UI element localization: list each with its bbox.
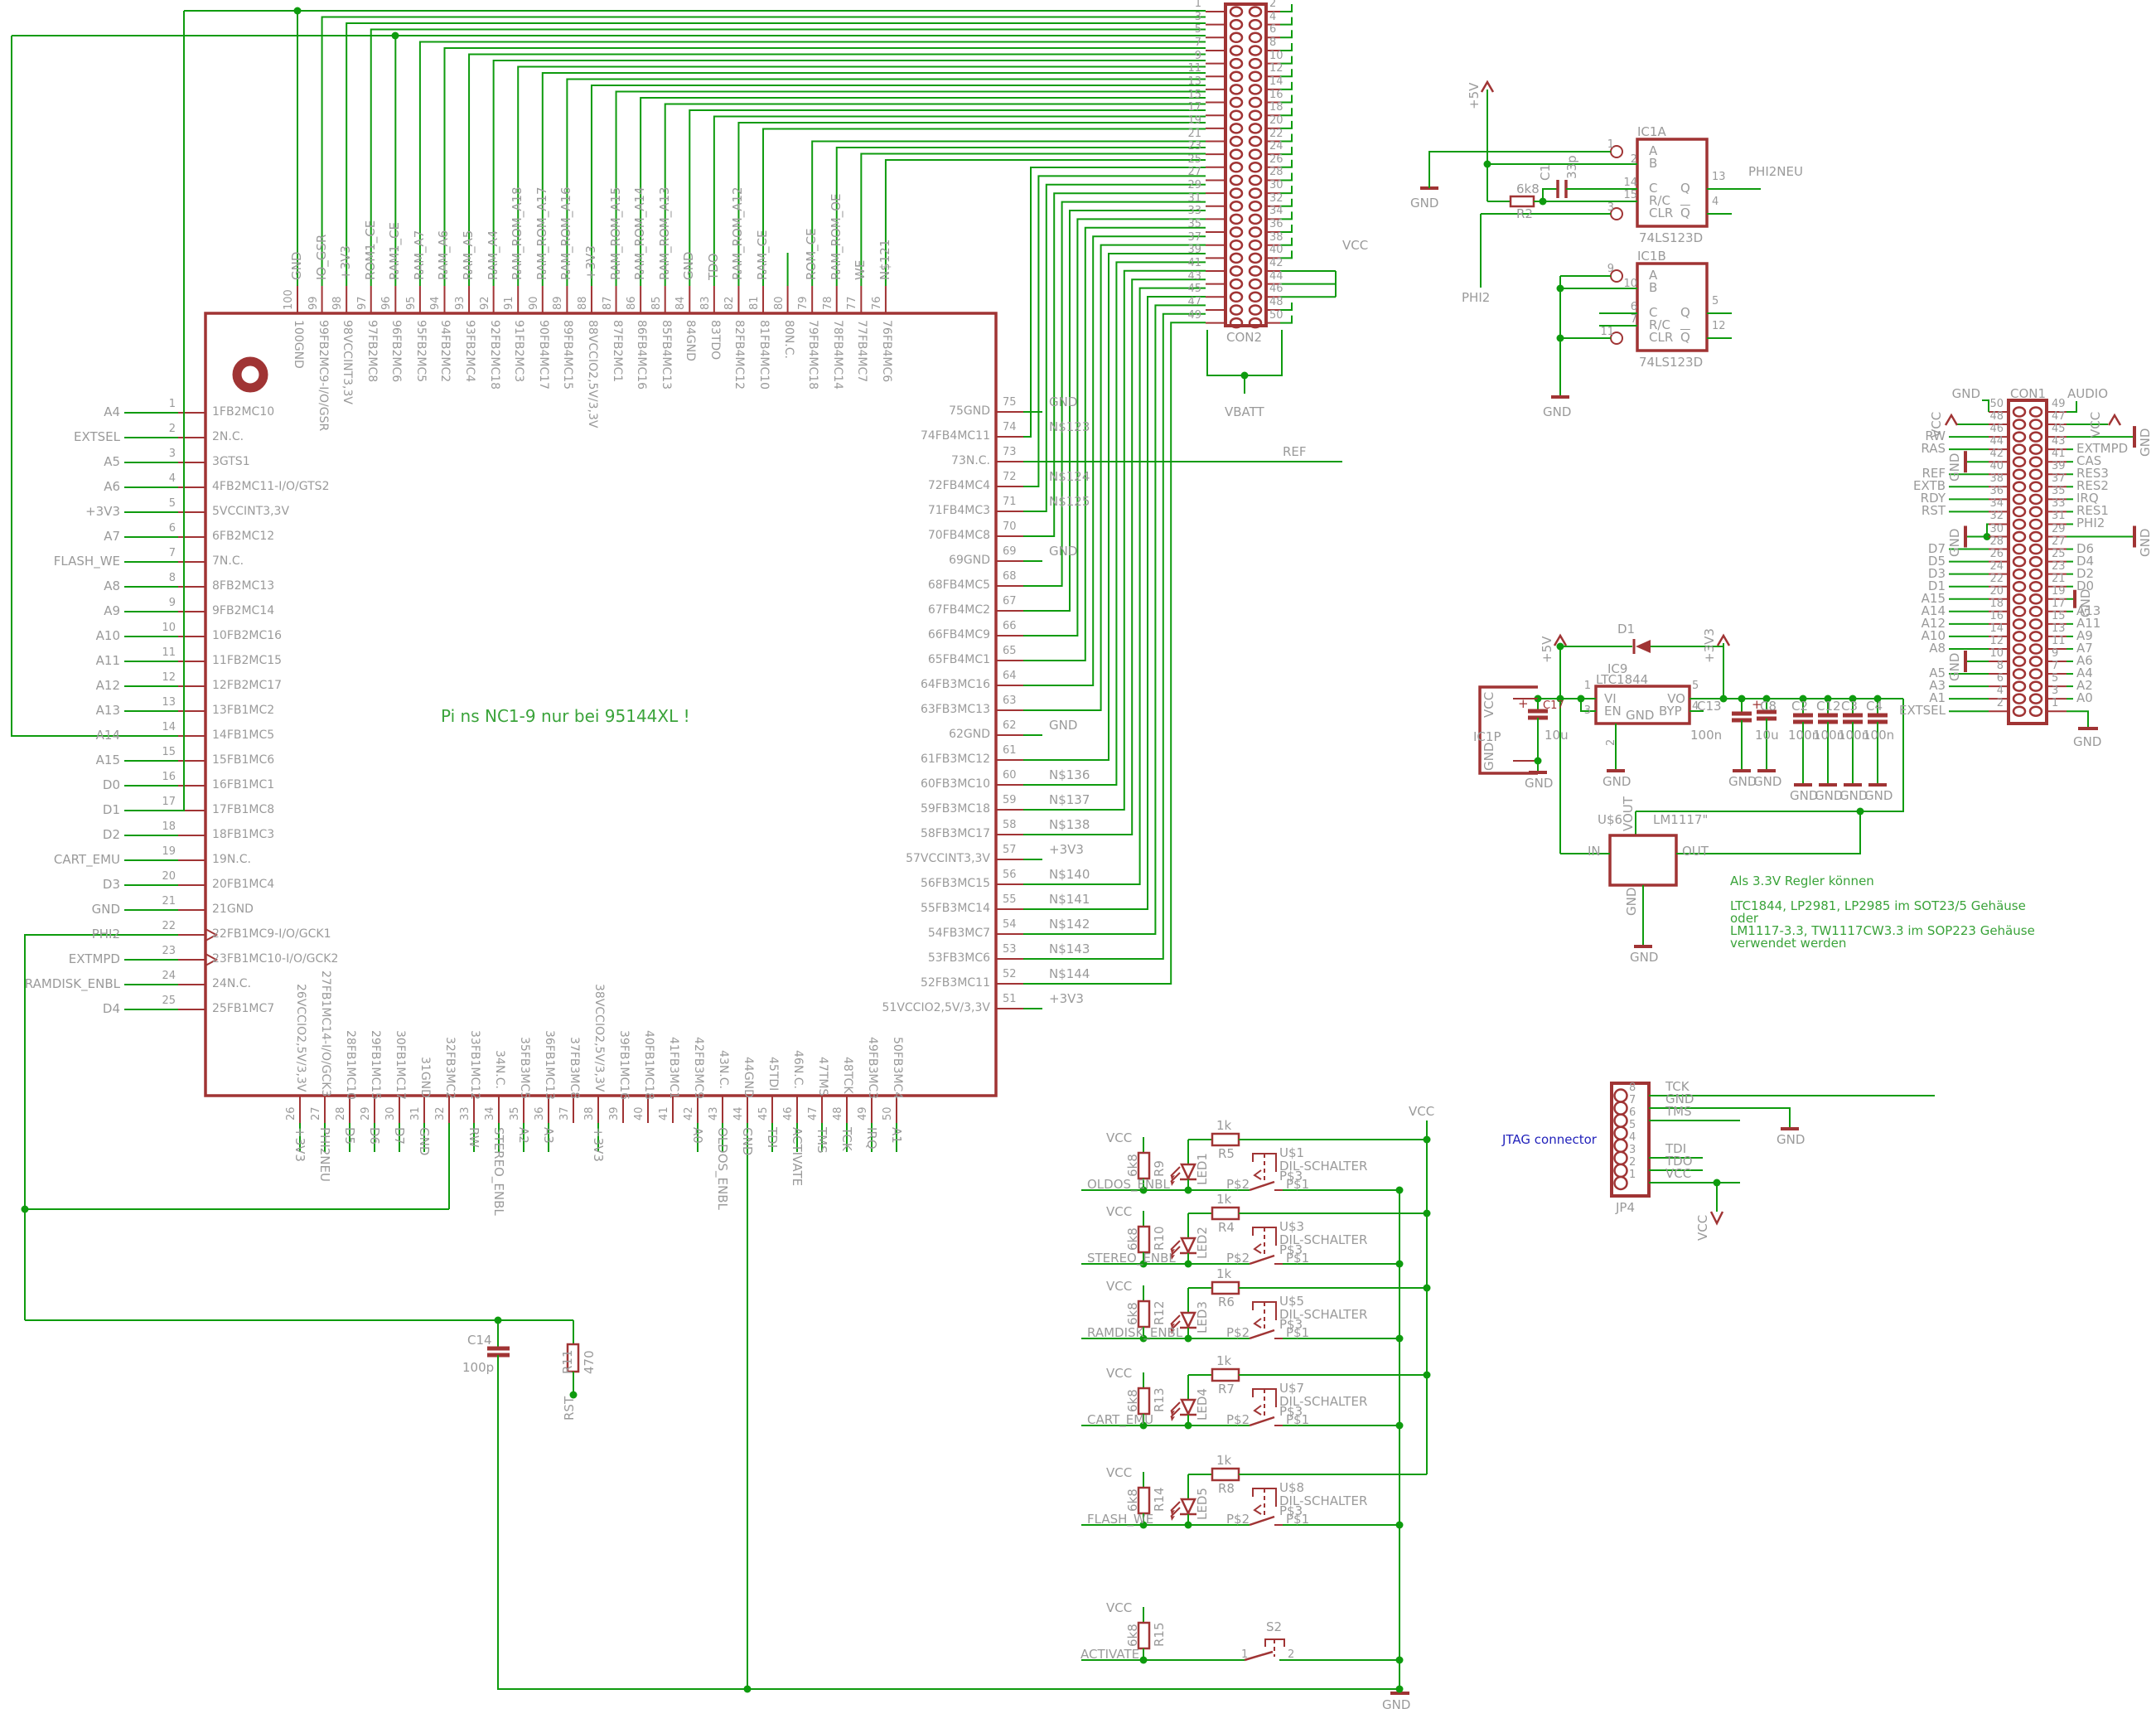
con1-pad[interactable] <box>2030 619 2042 628</box>
con1-pad[interactable] <box>2013 420 2025 429</box>
net-label: A0 <box>2076 692 2093 704</box>
net-label: D5 <box>343 1127 355 1145</box>
pin-number: 25 <box>143 995 176 1006</box>
led-icon[interactable] <box>1182 1164 1195 1179</box>
pin-number: 40 <box>1269 244 1283 255</box>
con1-pad[interactable] <box>2030 657 2042 666</box>
p5v-label: +5V <box>1468 83 1481 109</box>
pin-name: P$2 <box>1226 1252 1250 1265</box>
pin-number: 33 <box>2052 498 2066 509</box>
cap-ref: C2 <box>1791 700 1808 713</box>
net-label: A14 <box>12 729 120 742</box>
pin-name: 70FB4MC8 <box>791 530 990 541</box>
con1-pad[interactable] <box>2013 545 2025 554</box>
resistor-value: 1k <box>1216 1120 1231 1132</box>
net-label: D6 <box>368 1127 380 1145</box>
net-label: VCC <box>1665 1168 1691 1180</box>
con2-pad[interactable] <box>1230 176 1242 185</box>
pin-number: 10 <box>1604 278 1637 289</box>
pin-number: 9 <box>1168 51 1201 61</box>
pin-number: 12 <box>1269 63 1283 74</box>
con1-pad[interactable] <box>2013 682 2025 691</box>
cap-value: 10u <box>1544 729 1569 742</box>
jtag-pad[interactable] <box>1615 1177 1627 1189</box>
con2-pad[interactable] <box>1250 137 1261 146</box>
pin-number: 39 <box>2052 461 2066 472</box>
jtag-pad[interactable] <box>1615 1164 1627 1177</box>
pin-name: GND <box>1483 743 1496 771</box>
pin-name: 73N.C. <box>791 455 990 467</box>
net-label: A12 <box>12 680 120 692</box>
pin-number: 2 <box>1629 1157 1636 1168</box>
pin-number: 98 <box>332 296 343 310</box>
resistor-r2[interactable] <box>1511 196 1534 206</box>
pin-number: 15 <box>2052 611 2066 622</box>
pin-name: Q <box>1680 332 1690 344</box>
dip-switch-spring <box>1254 1319 1261 1328</box>
con2-pad[interactable] <box>1230 85 1242 94</box>
con2-pad[interactable] <box>1230 98 1242 107</box>
gnd-label: GND <box>1949 653 1961 681</box>
dip-switch-blade <box>1250 1417 1274 1425</box>
series-resistor[interactable] <box>1212 1469 1239 1480</box>
con1-pad[interactable] <box>2013 408 2025 417</box>
led-ref: LED2 <box>1196 1227 1209 1259</box>
pin-number: 93 <box>455 296 466 310</box>
pin-number: 18 <box>143 821 176 832</box>
con1-pad[interactable] <box>2013 569 2025 578</box>
pin-name: EN <box>1604 705 1622 718</box>
pin-number: 35 <box>510 1106 520 1121</box>
con2-pad[interactable] <box>1230 254 1242 263</box>
cap-value: 100n <box>1690 729 1722 742</box>
pin-number: 9 <box>1581 264 1614 274</box>
pin-number: 46 <box>1970 424 2004 434</box>
con1-pad[interactable] <box>2030 507 2042 516</box>
pin-name: 100GND <box>292 320 304 369</box>
pin-number: 36 <box>534 1106 545 1121</box>
pin-number: 36 <box>1269 219 1283 230</box>
con2-pad[interactable] <box>1230 215 1242 224</box>
switch-ref: S2 <box>1266 1621 1282 1634</box>
con2-pad[interactable] <box>1230 240 1242 249</box>
net-label: N$125 <box>1049 496 1090 508</box>
pin-name: 92FB2MC18 <box>489 320 500 390</box>
pin-number: 40 <box>634 1106 645 1121</box>
con1-pad[interactable] <box>2030 470 2042 479</box>
con1-pad[interactable] <box>2013 470 2025 479</box>
cap-ref: C17 <box>1543 700 1564 711</box>
resistor-ref: R14 <box>1153 1487 1166 1512</box>
gnd-label: GND <box>1602 776 1631 788</box>
pin-name: 14FB1MC5 <box>212 729 274 741</box>
con1-pad[interactable] <box>2013 445 2025 454</box>
pin-number: 1 <box>2052 698 2058 709</box>
con2-pad[interactable] <box>1250 279 1261 288</box>
pin-number: 2 <box>143 424 176 434</box>
pin-name: 62GND <box>791 728 990 740</box>
con1-pad[interactable] <box>2030 594 2042 603</box>
jtag-pad[interactable] <box>1615 1127 1627 1140</box>
pin-number: 30 <box>1269 180 1283 191</box>
junction-dot <box>1578 695 1585 703</box>
con1-pad[interactable] <box>2013 644 2025 653</box>
cap-ref: C3 <box>1841 700 1858 713</box>
pin-number: 49 <box>2052 399 2066 409</box>
led-icon[interactable] <box>1182 1499 1195 1513</box>
con2-pad[interactable] <box>1250 254 1261 263</box>
pin-number: 63 <box>1003 695 1017 706</box>
pin-name: 91FB2MC3 <box>513 320 524 382</box>
con2-pad[interactable] <box>1230 293 1242 302</box>
con1-pad[interactable] <box>2013 657 2025 666</box>
diode-ref: D1 <box>1617 623 1635 636</box>
pin-number: 17 <box>143 796 176 807</box>
pin-number: 43 <box>2052 436 2066 447</box>
pin-number: 47 <box>1168 297 1201 307</box>
pin-number: 83 <box>700 296 711 310</box>
net-label: REF <box>1283 446 1307 458</box>
led-icon[interactable] <box>1182 1400 1195 1414</box>
ic-part: 74LS123D <box>1639 356 1703 369</box>
net-label: PHI2 <box>12 928 120 941</box>
net-label: A6 <box>12 481 120 493</box>
led-icon[interactable] <box>1182 1313 1195 1327</box>
pin-number: 7 <box>1629 1095 1636 1106</box>
con1-pad[interactable] <box>2013 507 2025 516</box>
jtag-pad[interactable] <box>1615 1090 1627 1102</box>
con1-pad[interactable] <box>2030 695 2042 704</box>
switch-ref: U$3 <box>1279 1221 1304 1233</box>
con2-pad[interactable] <box>1250 111 1261 120</box>
pin-number: 27 <box>311 1106 321 1121</box>
con2-pad[interactable] <box>1230 162 1242 172</box>
pin-name: P$2 <box>1226 1414 1250 1426</box>
con1-pad[interactable] <box>2030 569 2042 578</box>
vcc-down-arrow-icon <box>1711 1212 1723 1223</box>
series-resistor[interactable] <box>1212 1134 1239 1145</box>
net-label: TMS <box>815 1127 828 1154</box>
series-resistor[interactable] <box>1212 1282 1239 1294</box>
cap-ref: C14 <box>467 1334 492 1347</box>
pin-number: 31 <box>410 1106 421 1121</box>
cap-ref: C8 <box>1760 700 1777 713</box>
net-label: ROM1_CE <box>365 220 377 280</box>
pin-name: 85FB4MC13 <box>660 320 672 390</box>
con2-pad[interactable] <box>1230 20 1242 29</box>
series-resistor[interactable] <box>1212 1208 1239 1219</box>
con2-pad[interactable] <box>1250 176 1261 185</box>
pin-number: 37 <box>1168 232 1201 243</box>
pin-number: 40 <box>1970 461 2004 472</box>
net-label: RAM_ROM_A12 <box>732 186 744 280</box>
pin-number: 2 <box>1288 1649 1294 1660</box>
con2-pad[interactable] <box>1250 33 1261 42</box>
con2-pad[interactable] <box>1250 293 1261 302</box>
con2-pad[interactable] <box>1250 20 1261 29</box>
con2-pad[interactable] <box>1230 46 1242 55</box>
net-label: RW <box>467 1127 480 1148</box>
pin-name: 26VCCIO2,5V/3,3V <box>295 984 307 1092</box>
gnd-label: GND <box>1753 776 1781 788</box>
pin-number: 97 <box>357 296 368 310</box>
pin-name: 47TMS <box>817 1057 829 1096</box>
con2-pad[interactable] <box>1250 98 1261 107</box>
pin-name: 60FB3MC10 <box>791 778 990 790</box>
con1-pad[interactable] <box>2030 433 2042 442</box>
junction-dot <box>294 7 302 15</box>
con2-pad[interactable] <box>1250 72 1261 81</box>
con1-pad[interactable] <box>2013 457 2025 467</box>
pin-number: 21 <box>2052 574 2066 584</box>
con1-pad[interactable] <box>2013 482 2025 491</box>
vcc-label: VCC <box>1106 1367 1132 1380</box>
dip-switch-blade <box>1250 1517 1274 1525</box>
pin-number: 79 <box>798 296 809 310</box>
con1-pad[interactable] <box>2013 520 2025 529</box>
con1-pad[interactable] <box>2013 632 2025 641</box>
net-label: N$141 <box>1049 893 1090 906</box>
pin-name: 81FB4MC10 <box>758 320 770 390</box>
pin-number: 2 <box>1606 739 1617 746</box>
con1-pad[interactable] <box>2013 532 2025 541</box>
net-wire <box>641 98 1206 286</box>
con1-pad[interactable] <box>2013 619 2025 628</box>
pin-number: 2 <box>1269 0 1276 9</box>
pin-number: 3 <box>1629 1145 1636 1155</box>
jtag-pad[interactable] <box>1615 1102 1627 1115</box>
resistor-ref: R15 <box>1153 1622 1166 1647</box>
pin-number: 36 <box>1970 486 2004 496</box>
gnd-label: GND <box>2139 528 2152 556</box>
pin-name: 57VCCINT3,3V <box>791 853 990 864</box>
pin-name: P$2 <box>1226 1513 1250 1526</box>
pin-number: 90 <box>529 296 539 310</box>
pin-name: 9FB2MC14 <box>212 605 274 617</box>
pin-number: 11 <box>1581 327 1614 337</box>
con1-pad[interactable] <box>2030 582 2042 591</box>
pin-number: 1 <box>1168 0 1201 9</box>
ic-ref: IC1P <box>1473 731 1501 743</box>
con1-pad[interactable] <box>2030 545 2042 554</box>
con1-pad[interactable] <box>2030 520 2042 529</box>
net-label: ACTIVATE <box>790 1127 803 1186</box>
con1-pad[interactable] <box>2030 670 2042 679</box>
pin-name: 64FB3MC16 <box>791 679 990 690</box>
con2-pad[interactable] <box>1230 7 1242 17</box>
con1-pad[interactable] <box>2030 707 2042 716</box>
series-resistor[interactable] <box>1212 1369 1239 1381</box>
gnd-label: GND <box>1410 197 1438 210</box>
pin-name: 74FB4MC11 <box>791 430 990 442</box>
con2-pad[interactable] <box>1250 201 1261 211</box>
led-icon[interactable] <box>1182 1238 1195 1252</box>
pin-number: 46 <box>1269 283 1283 294</box>
con2-pad[interactable] <box>1250 305 1261 314</box>
con1-pad[interactable] <box>2013 433 2025 442</box>
pin-number: 9 <box>2052 648 2058 659</box>
con1-pad[interactable] <box>2013 707 2025 716</box>
con2-pad[interactable] <box>1250 189 1261 198</box>
con2-pad[interactable] <box>1230 111 1242 120</box>
net-label: TMS <box>1665 1106 1692 1118</box>
dip-switch-spring <box>1254 1406 1261 1415</box>
lm1117-body[interactable] <box>1610 835 1676 885</box>
pin-number: 2 <box>1604 154 1637 165</box>
con2-pad[interactable] <box>1250 267 1261 276</box>
cap-value: 33p <box>1566 155 1578 179</box>
con2-pad[interactable] <box>1230 137 1242 146</box>
pin-number: 50 <box>882 1106 893 1121</box>
con2-pad[interactable] <box>1230 33 1242 42</box>
connector-title: JP4 <box>1616 1202 1635 1214</box>
pin-name: 13FB1MC2 <box>212 704 274 716</box>
net-label: FLASH_WE <box>12 555 120 568</box>
con2-pad[interactable] <box>1230 201 1242 211</box>
con2-pad[interactable] <box>1230 189 1242 198</box>
net-label: +3V3 <box>1049 844 1084 856</box>
con1-pad[interactable] <box>2013 582 2025 591</box>
net-label: RAM_ROM_A15 <box>610 186 622 280</box>
pin-number: 15 <box>1604 190 1637 201</box>
jtag-pad[interactable] <box>1615 1140 1627 1152</box>
con2-pad[interactable] <box>1250 7 1261 17</box>
pin-number: 32 <box>1269 193 1283 204</box>
pin-number: 15 <box>143 747 176 758</box>
con1-pad[interactable] <box>2013 695 2025 704</box>
pin-name: 18FB1MC3 <box>212 829 274 840</box>
net-label: OLDOS_ENBL <box>1087 1179 1170 1191</box>
net-label: EXTSEL <box>12 431 120 443</box>
pin-number: 17 <box>2052 598 2066 609</box>
con2-pad[interactable] <box>1230 267 1242 276</box>
net-label: D2 <box>12 829 120 841</box>
con2-pad[interactable] <box>1230 228 1242 237</box>
con2-pad[interactable] <box>1250 150 1261 159</box>
pin-name: 17FB1MC8 <box>212 804 274 816</box>
con1-pad[interactable] <box>2013 607 2025 616</box>
con1-pad[interactable] <box>2013 557 2025 566</box>
connector-title: CON1 <box>2010 388 2046 400</box>
pin-name: VCC <box>1483 692 1496 718</box>
con2-pad[interactable] <box>1250 162 1261 172</box>
con1-pad[interactable] <box>2030 420 2042 429</box>
con1-pad[interactable] <box>2030 445 2042 454</box>
pin-number: 1 <box>143 399 176 409</box>
pin-name: 48TCK <box>842 1057 853 1094</box>
pin-number: 13 <box>1168 76 1201 87</box>
jtag-pad[interactable] <box>1615 1115 1627 1127</box>
con2-pad[interactable] <box>1250 85 1261 94</box>
con1-pad[interactable] <box>2030 607 2042 616</box>
pin-number: 7 <box>1168 37 1201 48</box>
gnd-label: GND <box>1864 790 1893 802</box>
pin-number: 47 <box>2052 411 2066 422</box>
con2-pad[interactable] <box>1230 123 1242 133</box>
pin-number: 92 <box>480 296 491 310</box>
note-line: LTC1844, LP2981, LP2985 im SOT23/5 Gehäu… <box>1730 900 2026 912</box>
pin-number: 32 <box>435 1106 446 1121</box>
resistor-value: 1k <box>1216 1355 1231 1367</box>
net-label: N$123 <box>1049 421 1090 433</box>
net-label: +3V3 <box>592 1127 604 1162</box>
pin-number: 23 <box>1168 141 1201 152</box>
con2-pad[interactable] <box>1230 305 1242 314</box>
pin-name: GND <box>1626 709 1654 722</box>
con2-pad[interactable] <box>1230 279 1242 288</box>
con2-pad[interactable] <box>1250 59 1261 68</box>
net-label: GND <box>1049 545 1077 558</box>
pin-name: GND <box>1626 888 1638 916</box>
con2-pad[interactable] <box>1230 72 1242 81</box>
vcc-label: VCC <box>1106 1132 1132 1145</box>
pin-name: 78FB4MC14 <box>832 320 844 390</box>
net-label: RAS <box>1838 443 1946 455</box>
con1-pad[interactable] <box>2013 495 2025 504</box>
pin-name: 77FB4MC7 <box>856 320 868 382</box>
net-label: RAM1_CE <box>389 222 401 280</box>
pin-number: 5 <box>1712 296 1719 307</box>
net-label: EXTMPD <box>12 953 120 966</box>
pin1-marker-icon <box>237 361 263 388</box>
con1-pad[interactable] <box>2030 532 2042 541</box>
net-wire <box>665 104 1206 287</box>
con1-pad[interactable] <box>2030 495 2042 504</box>
pin-number: 14 <box>1970 623 2004 634</box>
con2-pad[interactable] <box>1250 240 1261 249</box>
junction-dot <box>392 32 399 40</box>
net-label: D4 <box>12 1003 120 1015</box>
con1-pad[interactable] <box>2030 457 2042 467</box>
pin-number: 75 <box>1003 397 1017 408</box>
pin-number: 7 <box>143 548 176 559</box>
pin-name: 65FB4MC1 <box>791 654 990 666</box>
con2-pad[interactable] <box>1250 215 1261 224</box>
pin-name: 82FB4MC12 <box>733 320 745 390</box>
net-label: N$140 <box>1049 869 1090 881</box>
con2-pad[interactable] <box>1250 123 1261 133</box>
con2-pad[interactable] <box>1250 228 1261 237</box>
con1-pad[interactable] <box>2030 644 2042 653</box>
pin-name: 45TDI <box>767 1057 779 1091</box>
pin-name: 34N.C. <box>494 1050 505 1089</box>
net-label: TCK <box>840 1127 853 1151</box>
con2-pad[interactable] <box>1230 59 1242 68</box>
pin-number: 28 <box>1970 536 2004 547</box>
con1-pad[interactable] <box>2013 594 2025 603</box>
switch-ref: U$8 <box>1279 1482 1304 1494</box>
schematic-canvas: ++ Pi ns NC1-9 nur bei 95144XL !1A41FB2M… <box>0 0 2156 1728</box>
jtag-pad[interactable] <box>1615 1152 1627 1164</box>
pin-name: 22FB1MC9-I/O/GCK1 <box>212 928 331 940</box>
pin-number: 8 <box>1629 1082 1636 1093</box>
con2-pad[interactable] <box>1230 150 1242 159</box>
con1-pad[interactable] <box>2030 408 2042 417</box>
con1-pad[interactable] <box>2030 632 2042 641</box>
pin-number: 5 <box>143 498 176 509</box>
pin-name: CLR <box>1649 332 1673 344</box>
switch-ref: U$7 <box>1279 1382 1304 1395</box>
con1-pad[interactable] <box>2030 557 2042 566</box>
pin-name: 68FB4MC5 <box>791 579 990 591</box>
con1-pad[interactable] <box>2030 682 2042 691</box>
con1-pad[interactable] <box>2030 482 2042 491</box>
con1-pad[interactable] <box>2013 670 2025 679</box>
pin-name: 35FB3MC5 <box>519 1037 530 1099</box>
switch-ref: U$1 <box>1279 1147 1304 1159</box>
pin-number: 11 <box>1168 63 1201 74</box>
con2-pad[interactable] <box>1250 46 1261 55</box>
